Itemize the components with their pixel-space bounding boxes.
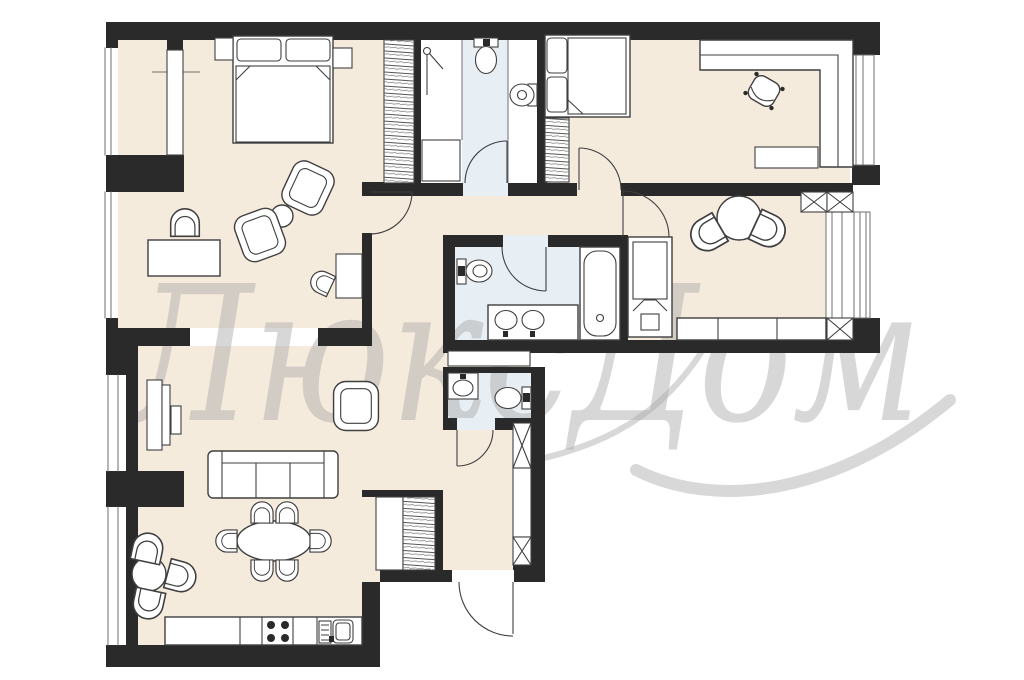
oval-dining-table [237, 521, 311, 561]
shower-door-gap [463, 183, 508, 196]
tv [171, 406, 181, 434]
pier-top [167, 22, 183, 50]
pillow [547, 38, 567, 73]
wc-door-gap [457, 418, 495, 430]
pillow [237, 39, 281, 61]
built-in-wardrobe-bedroom-2 [545, 118, 569, 182]
hall-closet [376, 497, 403, 570]
chair [251, 502, 273, 523]
washbasin-round [510, 84, 537, 106]
shaft-kitchen-top-1 [801, 192, 827, 212]
shelf-unit [167, 50, 183, 155]
chair [310, 530, 331, 552]
nightstand-right [333, 48, 352, 68]
shaft-hall-column [513, 423, 531, 565]
shower-tray [422, 140, 460, 181]
pier-bedroom-1 [106, 155, 184, 192]
living-room-window-lower [102, 507, 126, 645]
washbasin-wc [448, 373, 478, 399]
toilet-wc [495, 387, 531, 409]
pier-living-room [106, 471, 184, 507]
bedroom-1-window-lower [100, 192, 118, 318]
tall-cabinet [628, 237, 672, 337]
armchair-living [334, 382, 379, 431]
low-cabinet [755, 147, 818, 168]
double-bed [233, 36, 333, 143]
entrance-door [459, 582, 513, 636]
chair [276, 502, 298, 523]
bedroom-1-window-upper [100, 48, 118, 155]
entrance-door-gap [452, 570, 514, 582]
floor-plan: ЛюксДом [0, 0, 1024, 680]
built-in-wardrobe-bedroom-1 [384, 40, 414, 183]
living-room-window-upper [102, 375, 126, 471]
loggia-floor [842, 212, 854, 318]
chair [216, 530, 237, 552]
hall-wardrobe [403, 497, 435, 570]
bedroom-2-door-gap [577, 183, 621, 196]
double-bed-2 [545, 35, 630, 117]
kitchen-counter-dining [677, 318, 826, 340]
shaft-kitchen-top-2 [827, 192, 853, 212]
kitchen-window-east [826, 212, 870, 318]
bathroom-door-gap [503, 235, 548, 247]
corridor-floor [360, 190, 623, 237]
toilet-shower-room [474, 38, 498, 74]
pillow [547, 77, 567, 112]
sofa [208, 451, 338, 498]
pillow [286, 39, 330, 61]
bathtub [580, 247, 620, 340]
side-table [336, 254, 362, 298]
shaft-kitchen-bottom [827, 318, 853, 340]
kitchen-counter-living [165, 617, 362, 645]
nightstand-left [215, 38, 233, 60]
double-sink-vanity [488, 305, 578, 340]
toilet-bathroom [457, 259, 492, 284]
console-cabinet [448, 351, 530, 366]
chair [251, 560, 273, 581]
desk-chair [171, 209, 200, 237]
floor-plan-page: ЛюксДом [0, 0, 1024, 680]
sink-icon [329, 620, 353, 643]
desk [148, 240, 220, 276]
chair [276, 560, 298, 581]
